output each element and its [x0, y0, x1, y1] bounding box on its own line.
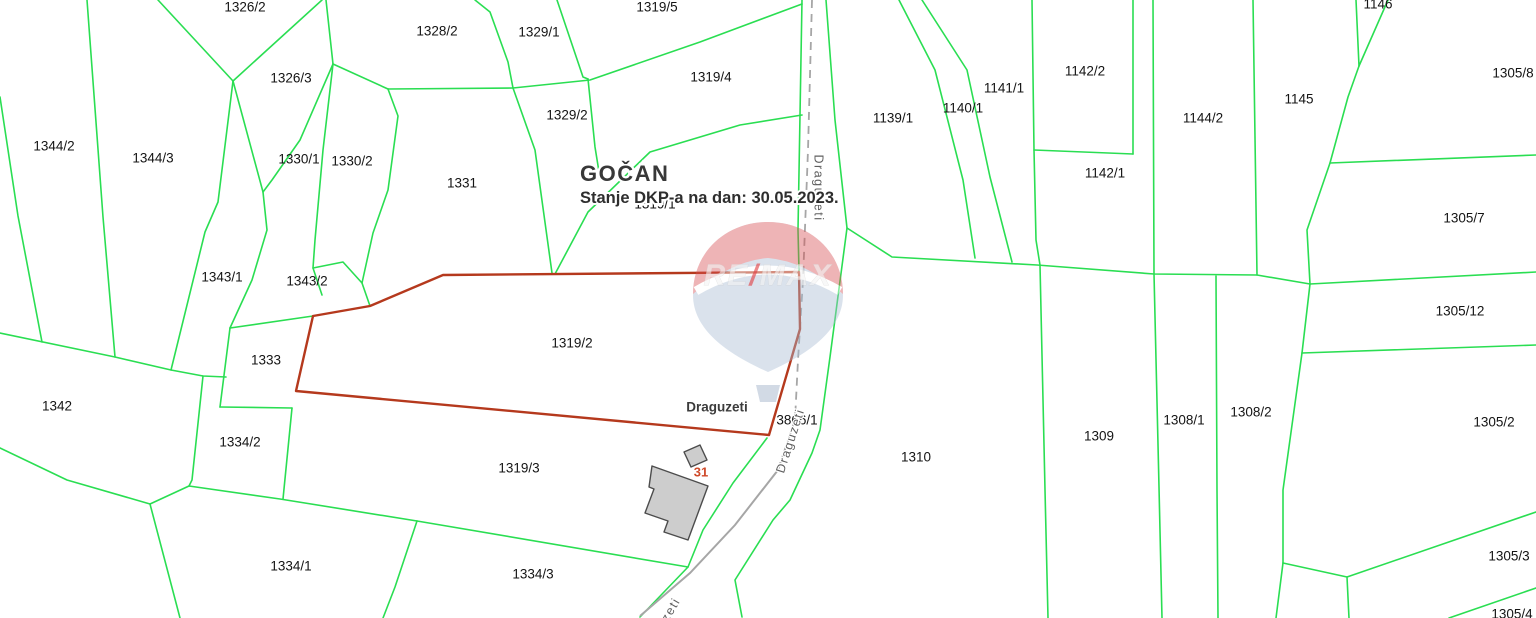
parcel-label: 1343/2	[286, 274, 327, 289]
parcel-label: 1308/2	[1230, 405, 1271, 420]
parcel-label: 1305/2	[1473, 415, 1514, 430]
parcel-label: 1319/2	[551, 336, 592, 351]
parcel-label: 1141/1	[984, 81, 1024, 96]
parcel-label: 1144/2	[1183, 111, 1223, 126]
remax-watermark-text: RE/MAX	[704, 259, 833, 292]
building-footprints	[645, 445, 708, 540]
parcel-label: 1329/2	[546, 108, 587, 123]
parcel-label: 1146	[1363, 0, 1392, 12]
parcel-label: 1305/12	[1436, 304, 1485, 319]
parcel-label: 1344/2	[33, 139, 74, 154]
parcel-label: 1334/1	[270, 559, 311, 574]
parcel-label: 1326/2	[224, 0, 265, 15]
parcel-label: 1334/2	[219, 435, 260, 450]
parcel-label: 1334/3	[512, 567, 553, 582]
house-number-label: 31	[694, 464, 708, 479]
parcel-label: 1139/1	[873, 111, 913, 126]
parcel-label: 1305/7	[1443, 211, 1484, 226]
settlement-label: Draguzeti	[686, 400, 748, 415]
parcel-label: 1305/4	[1491, 607, 1533, 618]
parcel-label: 1142/1	[1085, 166, 1125, 181]
parcel-label: 1319/5	[636, 0, 677, 15]
parcel-label: 1310	[901, 450, 931, 465]
parcel-label: 1142/2	[1065, 64, 1105, 79]
parcel-label: 1319/4	[690, 70, 732, 85]
remax-balloon-watermark	[693, 222, 843, 402]
parcel-label: 1331	[447, 176, 477, 191]
parcel-label: 1140/1	[943, 101, 983, 116]
parcel-label: 1329/1	[518, 25, 559, 40]
parcel-label: 1145	[1284, 92, 1313, 107]
parcel-label: 1308/1	[1163, 413, 1204, 428]
parcel-label: 1330/2	[331, 154, 372, 169]
parcel-label: 1309	[1084, 429, 1114, 444]
parcel-label: 1319/3	[498, 461, 539, 476]
parcel-label: 1305/3	[1488, 549, 1529, 564]
parcel-label: 1344/3	[132, 151, 173, 166]
parcel-label: 1333	[251, 353, 281, 368]
balloon-basket	[756, 385, 780, 402]
road-name-label: Draguzeti	[812, 155, 826, 222]
parcel-label: 1342	[42, 399, 72, 414]
parcel-label: 1328/2	[416, 24, 457, 39]
map-title: GOČAN	[580, 161, 669, 186]
parcel-label: 1343/1	[201, 270, 242, 285]
parcel-label: 1326/3	[270, 71, 311, 86]
parcel-label: 1305/8	[1492, 66, 1533, 81]
cadastral-map-viewer[interactable]: 1326/21328/21319/51329/11326/31319/41329…	[0, 0, 1536, 618]
map-subtitle: Stanje DKP-a na dan: 30.05.2023.	[580, 189, 839, 207]
cadastral-map-canvas[interactable]: 1326/21328/21319/51329/11326/31319/41329…	[0, 0, 1536, 618]
parcel-label: 1330/1	[278, 152, 319, 167]
